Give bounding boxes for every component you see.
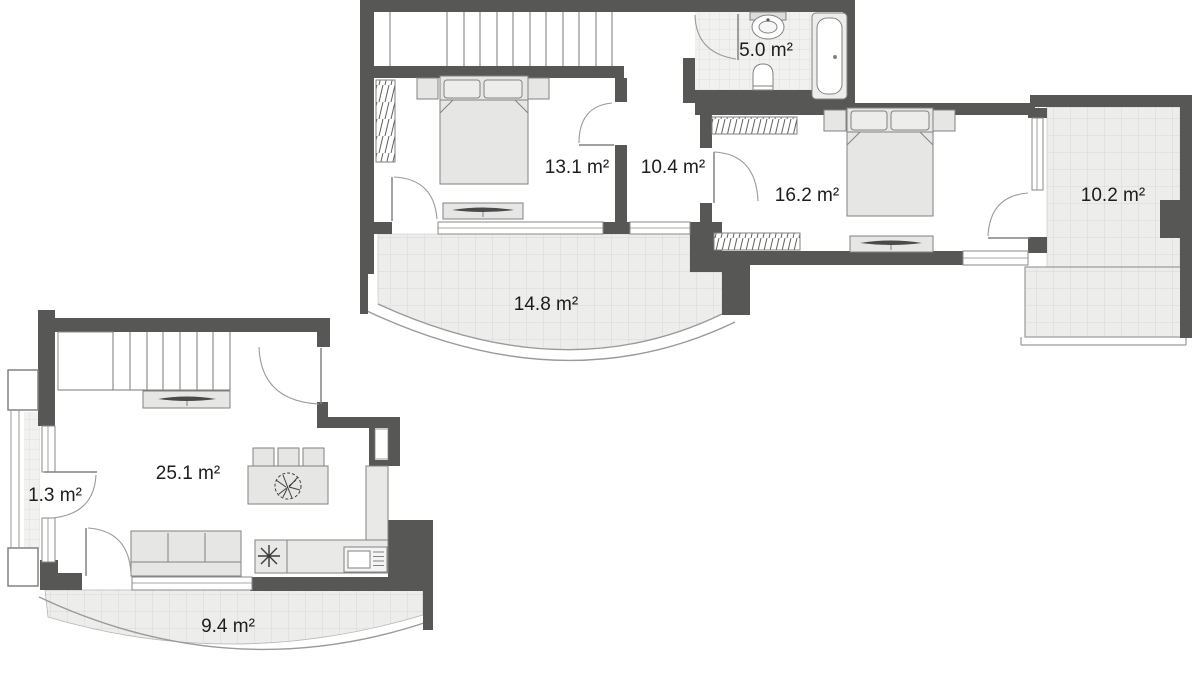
window (42, 518, 55, 562)
room-label-living: 25.1 m² (156, 463, 220, 484)
chair (278, 448, 299, 466)
wardrobe (714, 233, 800, 250)
loggia-tiles (24, 412, 40, 548)
dining-table (248, 466, 328, 504)
nightstand (528, 78, 549, 99)
double-bed (440, 76, 528, 184)
wardrobe (712, 117, 797, 134)
dining-set (248, 448, 328, 504)
room-label-bedroom1: 13.1 m² (545, 157, 609, 178)
wardrobe (376, 80, 395, 162)
nightstand (417, 78, 438, 99)
shaft (375, 429, 388, 459)
sofa (131, 531, 241, 576)
window (963, 251, 1028, 265)
bathtub (812, 13, 847, 99)
room-label-bedroom2: 16.2 m² (775, 185, 839, 206)
double-bed (847, 108, 933, 216)
tv-stand (850, 236, 933, 252)
pier (8, 370, 38, 410)
window (42, 426, 55, 472)
sink (344, 547, 387, 572)
pier (8, 548, 38, 586)
tv-stand (443, 203, 523, 219)
window (630, 222, 690, 234)
window (1032, 118, 1043, 190)
room-label-loggia: 1.3 m² (28, 485, 82, 506)
nightstand (824, 110, 846, 131)
chair (253, 448, 274, 466)
window (132, 577, 252, 590)
room-label-hallway: 10.4 m² (641, 157, 705, 178)
window (438, 222, 603, 234)
floor-plan: 13.1 m² 10.4 m² 5.0 m² 16.2 m² 10.2 m² 1… (0, 0, 1200, 675)
toilet (753, 64, 773, 90)
room-label-bathroom: 5.0 m² (739, 40, 793, 61)
sink (750, 12, 786, 39)
tv-stand (143, 391, 230, 408)
room-label-balcony-front: 14.8 m² (514, 294, 578, 315)
room-label-balcony-side: 10.2 m² (1081, 185, 1145, 206)
chair (303, 448, 324, 466)
cooktop (258, 545, 280, 567)
floor-plan-page: 13.1 m² 10.4 m² 5.0 m² 16.2 m² 10.2 m² 1… (0, 0, 1200, 675)
nightstand (933, 110, 955, 131)
room-label-balcony: 9.4 m² (201, 616, 255, 637)
